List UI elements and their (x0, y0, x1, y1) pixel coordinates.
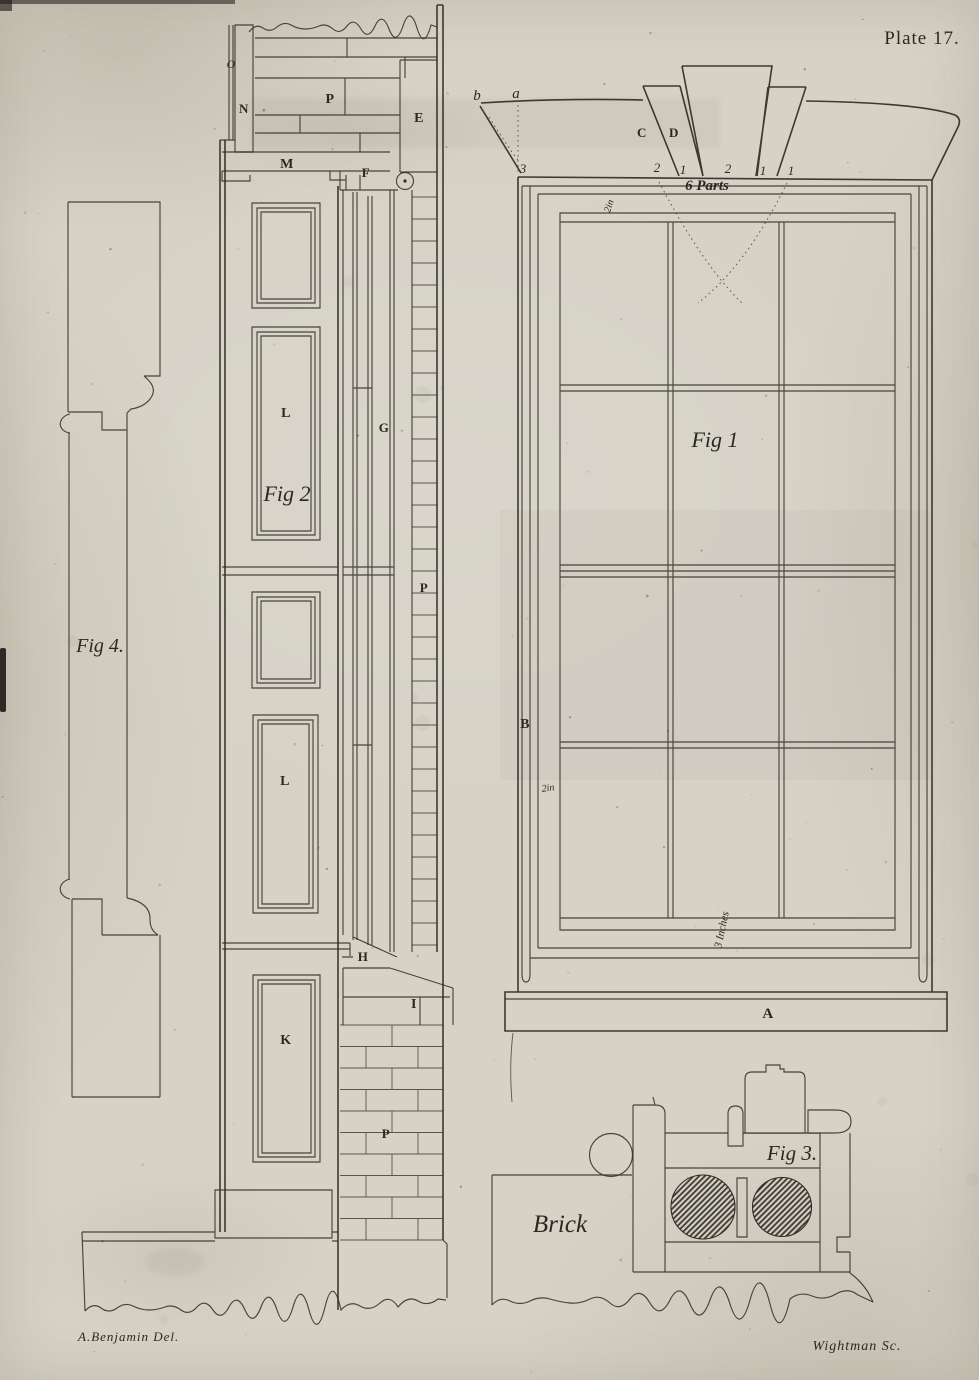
paper-speck (158, 884, 161, 887)
fig1-top-rail-dim: 2in (602, 198, 616, 214)
paper-speck (334, 60, 336, 62)
paper-speck (273, 343, 275, 345)
arch-division-1b: 1 (760, 163, 767, 178)
paper-speck (372, 947, 374, 949)
fig2-break-line-bottom (85, 1291, 446, 1324)
fig3-caption: Fig 3. (766, 1141, 817, 1165)
fig2-running-bond (340, 1025, 443, 1240)
paper-speck (907, 366, 909, 368)
fig2-base-and-ground (82, 190, 447, 1311)
paper-speck (789, 838, 791, 840)
paper-stain (921, 953, 934, 966)
fig3-bead-piece (728, 1106, 743, 1146)
fig3-weight-end-circle (590, 1134, 633, 1177)
fig2-label-f: F (362, 165, 370, 180)
fig2-sash-members (343, 190, 394, 952)
paper-speck (263, 109, 266, 112)
paper-speck (94, 1351, 95, 1352)
arch-point-a: a (512, 86, 520, 102)
paper-speck (588, 471, 590, 473)
fig2-label-e: E (414, 111, 424, 126)
paper-stain (966, 1173, 979, 1186)
plate-engraving: b a C D 3 2 1 2 1 1 6 Parts 2in Fig 1 B … (0, 0, 979, 1380)
arch-voussoir-c: C (637, 125, 647, 140)
paper-speck (753, 361, 754, 362)
paper-speck (686, 1177, 688, 1179)
arch-division-3: 3 (519, 161, 527, 176)
paper-stain (411, 694, 419, 702)
paper-speck (740, 595, 742, 597)
paper-speck (440, 387, 442, 389)
fig2-label-p-planks: P (325, 92, 334, 107)
paper-speck (854, 408, 855, 409)
paper-speck (417, 955, 419, 957)
paper-speck (646, 595, 649, 598)
paper-speck (214, 128, 215, 129)
paper-speck (245, 1334, 246, 1335)
paper-speck (326, 868, 328, 870)
paper-speck (338, 427, 340, 429)
fig2-caption: Fig 2 (262, 481, 310, 506)
credit-delineator: A.Benjamin Del. (77, 1329, 179, 1344)
fig3-outer-lining (837, 1133, 873, 1302)
paper-speck (616, 806, 618, 808)
paper-speck (47, 312, 48, 313)
paper-speck (534, 1058, 536, 1060)
paper-smudge (145, 1248, 205, 1276)
paper-speck (862, 19, 863, 20)
arch-parts-label: 6 Parts (685, 178, 729, 194)
paper-speck (494, 1060, 495, 1061)
paper-speck (884, 861, 887, 864)
paper-speck (38, 212, 40, 214)
plate-number: Plate 17. (884, 28, 960, 49)
paper-speck (807, 918, 809, 920)
paper-speck (43, 50, 45, 52)
paper-speck (700, 550, 702, 552)
fig2-label-g: G (379, 420, 390, 435)
scan-corner-mark (0, 0, 12, 11)
fig2-label-h: H (358, 949, 369, 964)
fig2-break-line-top (249, 16, 437, 39)
paper-stain (159, 1315, 168, 1324)
fig3-plan-section: Brick Fig 3. (492, 1065, 873, 1323)
scan-edge-mark (0, 0, 235, 4)
paper-speck (695, 926, 697, 928)
paper-speck (24, 211, 27, 214)
arch-voussoir-d: D (669, 125, 679, 140)
fig3-break-line (492, 1283, 873, 1323)
paper-speck (667, 730, 669, 732)
paper-speck (475, 576, 476, 577)
fig1-sill-label: A (762, 1006, 773, 1022)
paper-speck (928, 1290, 930, 1292)
fig3-stile-piece (745, 1065, 805, 1133)
paper-speck (329, 896, 330, 897)
paper-speck (109, 248, 111, 250)
paper-speck (569, 716, 572, 719)
paper-speck (317, 847, 319, 849)
paper-speck (332, 148, 334, 150)
paper-speck (663, 846, 665, 848)
fig2-label-l-upper: L (281, 406, 291, 421)
fig3-stop-piece (808, 1110, 851, 1133)
fig2-head-trim (222, 152, 398, 190)
paper-speck (649, 32, 651, 34)
paper-speck (672, 179, 673, 180)
paper-speck (141, 1163, 143, 1165)
paper-speck (460, 1185, 463, 1188)
paper-speck (401, 430, 403, 432)
fig2-label-p-brick: P (382, 1126, 390, 1141)
paper-speck (174, 1029, 176, 1031)
paper-speck (293, 743, 296, 746)
arch-division-1c: 1 (788, 163, 795, 178)
paper-speck (64, 734, 65, 735)
paper-stain (414, 386, 431, 403)
scan-left-streak (0, 648, 6, 712)
fig4-moulding-profile: Fig 4. (60, 202, 160, 1097)
paper-speck (54, 563, 55, 564)
paper-speck (749, 1246, 750, 1247)
credit-engraver: Wightman Sc. (813, 1339, 902, 1354)
fig3-jamb-member (633, 1097, 665, 1272)
paper-speck (629, 1196, 630, 1197)
paper-speck (566, 443, 567, 444)
arch-division-2a: 2 (654, 160, 661, 175)
paper-speck (749, 1328, 751, 1330)
paper-speck (847, 162, 849, 164)
paper-speck (124, 1280, 126, 1282)
paper-speck (813, 923, 815, 925)
fig2-label-m: M (280, 157, 294, 172)
paper-speck (620, 318, 622, 320)
paper-speck (572, 821, 573, 822)
paper-speck (445, 146, 447, 148)
fig2-chair-rail (222, 567, 338, 575)
fig2-label-k: K (280, 1033, 291, 1048)
paper-speck (315, 534, 316, 535)
paper-speck (562, 585, 563, 586)
paper-speck (871, 768, 873, 770)
paper-speck (531, 1371, 533, 1373)
paper-speck (356, 434, 359, 437)
paper-stain (68, 636, 79, 647)
paper-speck (322, 745, 323, 746)
paper-speck (837, 545, 838, 546)
fig3-brick-label: Brick (533, 1211, 588, 1238)
fig1-caption: Fig 1 (690, 427, 738, 452)
paper-stain (343, 276, 354, 287)
paper-speck (2, 796, 4, 798)
paper-speck (867, 221, 868, 222)
showthrough-band (500, 510, 930, 780)
paper-speck (91, 383, 93, 385)
paper-speck (385, 552, 386, 553)
paper-speck (817, 589, 820, 592)
paper-speck (804, 68, 807, 71)
paper-speck (855, 98, 857, 100)
fig2-label-o: O (227, 57, 236, 71)
paper-speck (751, 794, 752, 795)
paper-speck (446, 92, 449, 95)
paper-speck (942, 938, 943, 939)
fig2-vertical-section: O N P E M F L Fig 2 G P L H K I P (82, 5, 453, 1324)
paper-speck (692, 1221, 693, 1222)
paper-speck (828, 400, 829, 401)
fig3-sash-weight-left (671, 1175, 735, 1239)
paper-speck (447, 576, 448, 577)
paper-speck (233, 1123, 234, 1124)
fig2-label-n: N (239, 101, 249, 116)
paper-speck (659, 774, 660, 775)
paper-speck (300, 224, 301, 225)
fig3-sash-weight-right (753, 1178, 812, 1237)
paper-speck (603, 83, 605, 85)
paper-stain (877, 1097, 887, 1107)
paper-speck (718, 909, 720, 911)
paper-speck (940, 1149, 942, 1151)
scanned-plate-page: b a C D 3 2 1 2 1 1 6 Parts 2in Fig 1 B … (0, 0, 979, 1380)
fig2-label-p-wall: P (420, 580, 428, 595)
paper-speck (736, 950, 738, 952)
fig1-stile-dim: 2in (541, 782, 555, 795)
paper-speck (526, 617, 529, 620)
paper-speck (913, 247, 916, 250)
showthrough-band (250, 98, 720, 148)
paper-speck (860, 171, 862, 173)
paper-speck (567, 971, 570, 974)
paper-speck (765, 394, 768, 397)
arch-point-b: b (473, 88, 481, 104)
paper-speck (805, 1150, 808, 1153)
paper-speck (237, 248, 239, 250)
paper-speck (762, 438, 764, 440)
paper-stain (971, 542, 978, 549)
paper-speck (512, 635, 514, 637)
paper-speck (70, 35, 71, 36)
fig3-brick-outline (492, 1175, 632, 1305)
paper-speck (191, 858, 192, 859)
paper-speck (846, 869, 848, 871)
fig4-caption: Fig 4. (75, 635, 124, 657)
fig2-label-i: I (411, 997, 417, 1012)
sash-pulley-pin (403, 179, 406, 182)
paper-speck (693, 701, 694, 702)
fig1-jamb-label: B (520, 717, 530, 732)
paper-speck (619, 1259, 622, 1262)
arch-division-2b: 2 (725, 161, 732, 176)
paper-speck (931, 336, 933, 338)
paper-speck (951, 721, 953, 723)
paper-stain (414, 715, 430, 731)
fig1-leader-line (511, 1033, 513, 1102)
fig2-label-l-lower: L (280, 774, 290, 789)
paper-speck (747, 1296, 748, 1297)
fig1-sash-grid (560, 213, 895, 930)
paper-speck (895, 541, 896, 542)
paper-speck (101, 1240, 104, 1243)
paper-speck (806, 822, 807, 823)
paper-speck (347, 868, 349, 870)
paper-speck (709, 1257, 712, 1260)
paper-speck (181, 973, 182, 974)
fig2-wall-ladder-courses (412, 197, 437, 945)
fig2-panels (252, 203, 320, 1162)
arch-division-1a: 1 (680, 162, 687, 177)
